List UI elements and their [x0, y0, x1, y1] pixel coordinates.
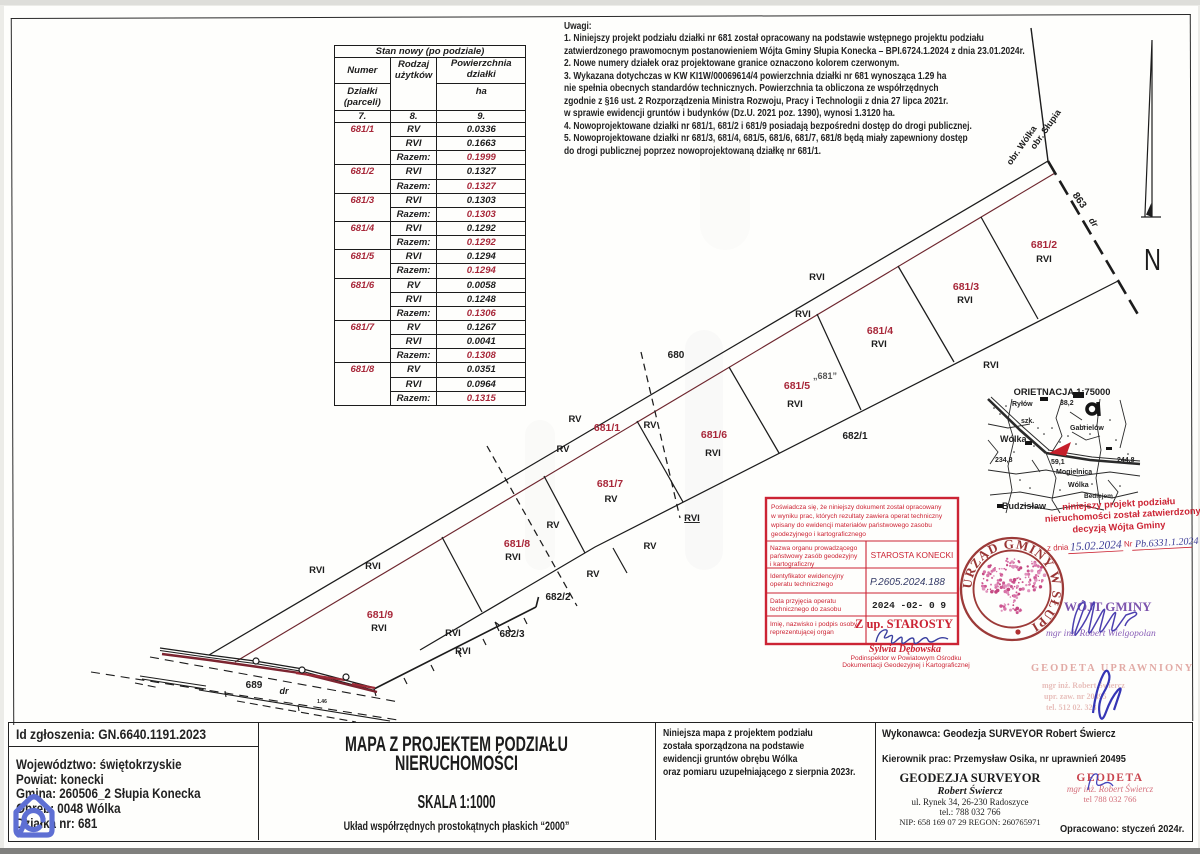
svg-text:RV: RV [556, 444, 570, 455]
svg-text:mgr inż. Robert Świercz: mgr inż. Robert Świercz [1042, 680, 1125, 690]
svg-text:decyzją Wójta Gminy: decyzją Wójta Gminy [1072, 520, 1166, 535]
svg-text:N: N [1144, 242, 1161, 277]
svg-text:dr: dr [280, 686, 289, 696]
svg-text:234,8: 234,8 [995, 457, 1013, 464]
svg-text:Identyfikator ewidencyjny: Identyfikator ewidencyjny [770, 573, 844, 580]
svg-text:59,1: 59,1 [1051, 459, 1065, 466]
svg-text:Poświadcza się, że niniejszy d: Poświadcza się, że niniejszy dokument zo… [771, 504, 942, 511]
svg-text:RVI: RVI [957, 295, 973, 306]
svg-text:RVI: RVI [455, 646, 471, 657]
svg-text:Nr: Nr [1124, 539, 1133, 548]
svg-text:państwowy zasób geodezyjny: państwowy zasób geodezyjny [770, 553, 858, 560]
svg-text:dr: dr [1087, 216, 1101, 230]
svg-text:Pb.6331.1.2024: Pb.6331.1.2024 [1134, 536, 1199, 550]
svg-text:2024 -02- 0 9: 2024 -02- 0 9 [872, 600, 946, 611]
svg-text:Wólka: Wólka [1000, 434, 1027, 444]
svg-text:RVI: RVI [684, 513, 700, 524]
svg-text:z dnia: z dnia [1047, 543, 1069, 553]
svg-text:RVI: RVI [795, 309, 811, 320]
svg-text:RV: RV [604, 494, 618, 505]
svg-text:RVI: RVI [1036, 254, 1052, 265]
svg-text:681/9: 681/9 [367, 609, 393, 621]
svg-text:Z up. STAROSTY: Z up. STAROSTY [855, 617, 953, 631]
svg-text:Data przyjęcia operatu: Data przyjęcia operatu [770, 598, 836, 605]
svg-text:Sylwia Dębowska: Sylwia Dębowska [869, 644, 941, 655]
svg-text:682/3: 682/3 [499, 629, 524, 640]
svg-text:RVI: RVI [309, 565, 325, 576]
svg-text:682/2: 682/2 [545, 592, 570, 603]
svg-text:RVI: RVI [871, 339, 887, 350]
svg-text:689: 689 [246, 680, 263, 691]
svg-text:681/2: 681/2 [1031, 239, 1057, 251]
svg-text:wpisany do ewidencji materiałó: wpisany do ewidencji materiałów państwow… [770, 522, 932, 529]
svg-text:681/5: 681/5 [784, 380, 810, 392]
svg-text:i kartograficzny: i kartograficzny [770, 561, 815, 568]
svg-text:tel. 512 02. 328: tel. 512 02. 328 [1046, 703, 1096, 712]
svg-text:680: 680 [668, 350, 685, 361]
svg-text:RVI: RVI [371, 623, 387, 634]
svg-text:w wyniku prac, których rezulta: w wyniku prac, których rezultaty zawiera… [770, 513, 943, 520]
svg-text:Gabrielów: Gabrielów [1070, 425, 1104, 432]
svg-text:RVI: RVI [983, 360, 999, 371]
svg-text:geodezyjnego i kartograficzneg: geodezyjnego i kartograficznego [771, 531, 866, 538]
svg-text:Imię, nazwisko i podpis osoby: Imię, nazwisko i podpis osoby [770, 621, 858, 628]
svg-text:Ryłów: Ryłów [1012, 401, 1033, 408]
svg-text:RV: RV [643, 420, 657, 431]
svg-text:GEODETA UPRAWNIONY: GEODETA UPRAWNIONY [1031, 663, 1194, 674]
svg-text:P.2605.2024.188: P.2605.2024.188 [870, 577, 945, 588]
svg-text:Mogielnica: Mogielnica [1056, 469, 1092, 476]
svg-text:682/1: 682/1 [842, 431, 867, 442]
svg-text:RVI: RVI [809, 272, 825, 283]
svg-text:244,8: 244,8 [1117, 457, 1135, 464]
svg-text:681/6: 681/6 [701, 429, 727, 441]
svg-text:RVI: RVI [505, 552, 521, 563]
svg-text:RV: RV [568, 414, 582, 425]
svg-text:STAROSTA KONECKI: STAROSTA KONECKI [871, 550, 954, 560]
svg-text:681/3: 681/3 [953, 281, 979, 293]
svg-text:ORIETNACJA 1:75000: ORIETNACJA 1:75000 [1014, 387, 1111, 397]
svg-text:szk.: szk. [1021, 418, 1034, 425]
svg-text:Podinspektor w Powiatowym Ośro: Podinspektor w Powiatowym Ośrodku [851, 655, 962, 662]
svg-text:RVI: RVI [365, 561, 381, 572]
svg-text:Budzisław: Budzisław [1002, 501, 1047, 511]
svg-text:RVI: RVI [705, 448, 721, 459]
svg-text:1.46: 1.46 [317, 699, 327, 705]
svg-text:681/1: 681/1 [594, 422, 620, 434]
svg-text:681/8: 681/8 [504, 538, 530, 550]
svg-text:681/4: 681/4 [867, 325, 893, 337]
svg-text:Wólka: Wólka [1068, 482, 1089, 489]
svg-text:technicznego do zasobu: technicznego do zasobu [770, 606, 841, 613]
svg-text:Dokumentacji Geodezyjnej i Kar: Dokumentacji Geodezyjnej i Kartograficzn… [842, 662, 970, 669]
svg-text:RV: RV [546, 520, 560, 531]
svg-text:RV: RV [586, 569, 600, 580]
svg-text:681/7: 681/7 [597, 478, 623, 490]
svg-text:RVI: RVI [787, 399, 803, 410]
svg-text:operatu technicznego: operatu technicznego [770, 581, 833, 588]
svg-text:RVI: RVI [445, 628, 461, 639]
svg-text:„681”: „681” [813, 371, 837, 381]
svg-text:reprezentującej organ: reprezentującej organ [770, 629, 834, 636]
svg-text:863: 863 [1070, 191, 1089, 211]
svg-text:RV: RV [643, 541, 657, 552]
svg-text:Nazwa organu prowadzącego: Nazwa organu prowadzącego [770, 545, 858, 552]
svg-text:mgr inż. Robert Wielgopolan: mgr inż. Robert Wielgopolan [1046, 629, 1156, 639]
svg-text:38,2: 38,2 [1060, 400, 1074, 407]
